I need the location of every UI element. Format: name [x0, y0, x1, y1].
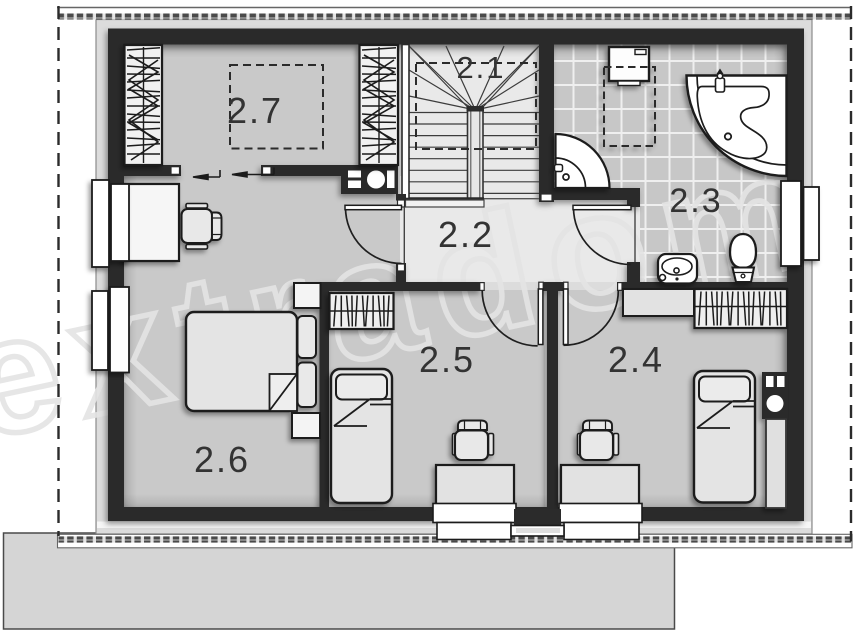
svg-text:2.1: 2.1 — [456, 50, 505, 85]
svg-text:2.4: 2.4 — [608, 339, 664, 380]
svg-text:2.2: 2.2 — [438, 214, 494, 255]
svg-text:2.7: 2.7 — [227, 90, 283, 131]
svg-text:2.6: 2.6 — [194, 439, 250, 480]
svg-text:2.5: 2.5 — [419, 339, 475, 380]
svg-text:2.3: 2.3 — [669, 182, 722, 220]
